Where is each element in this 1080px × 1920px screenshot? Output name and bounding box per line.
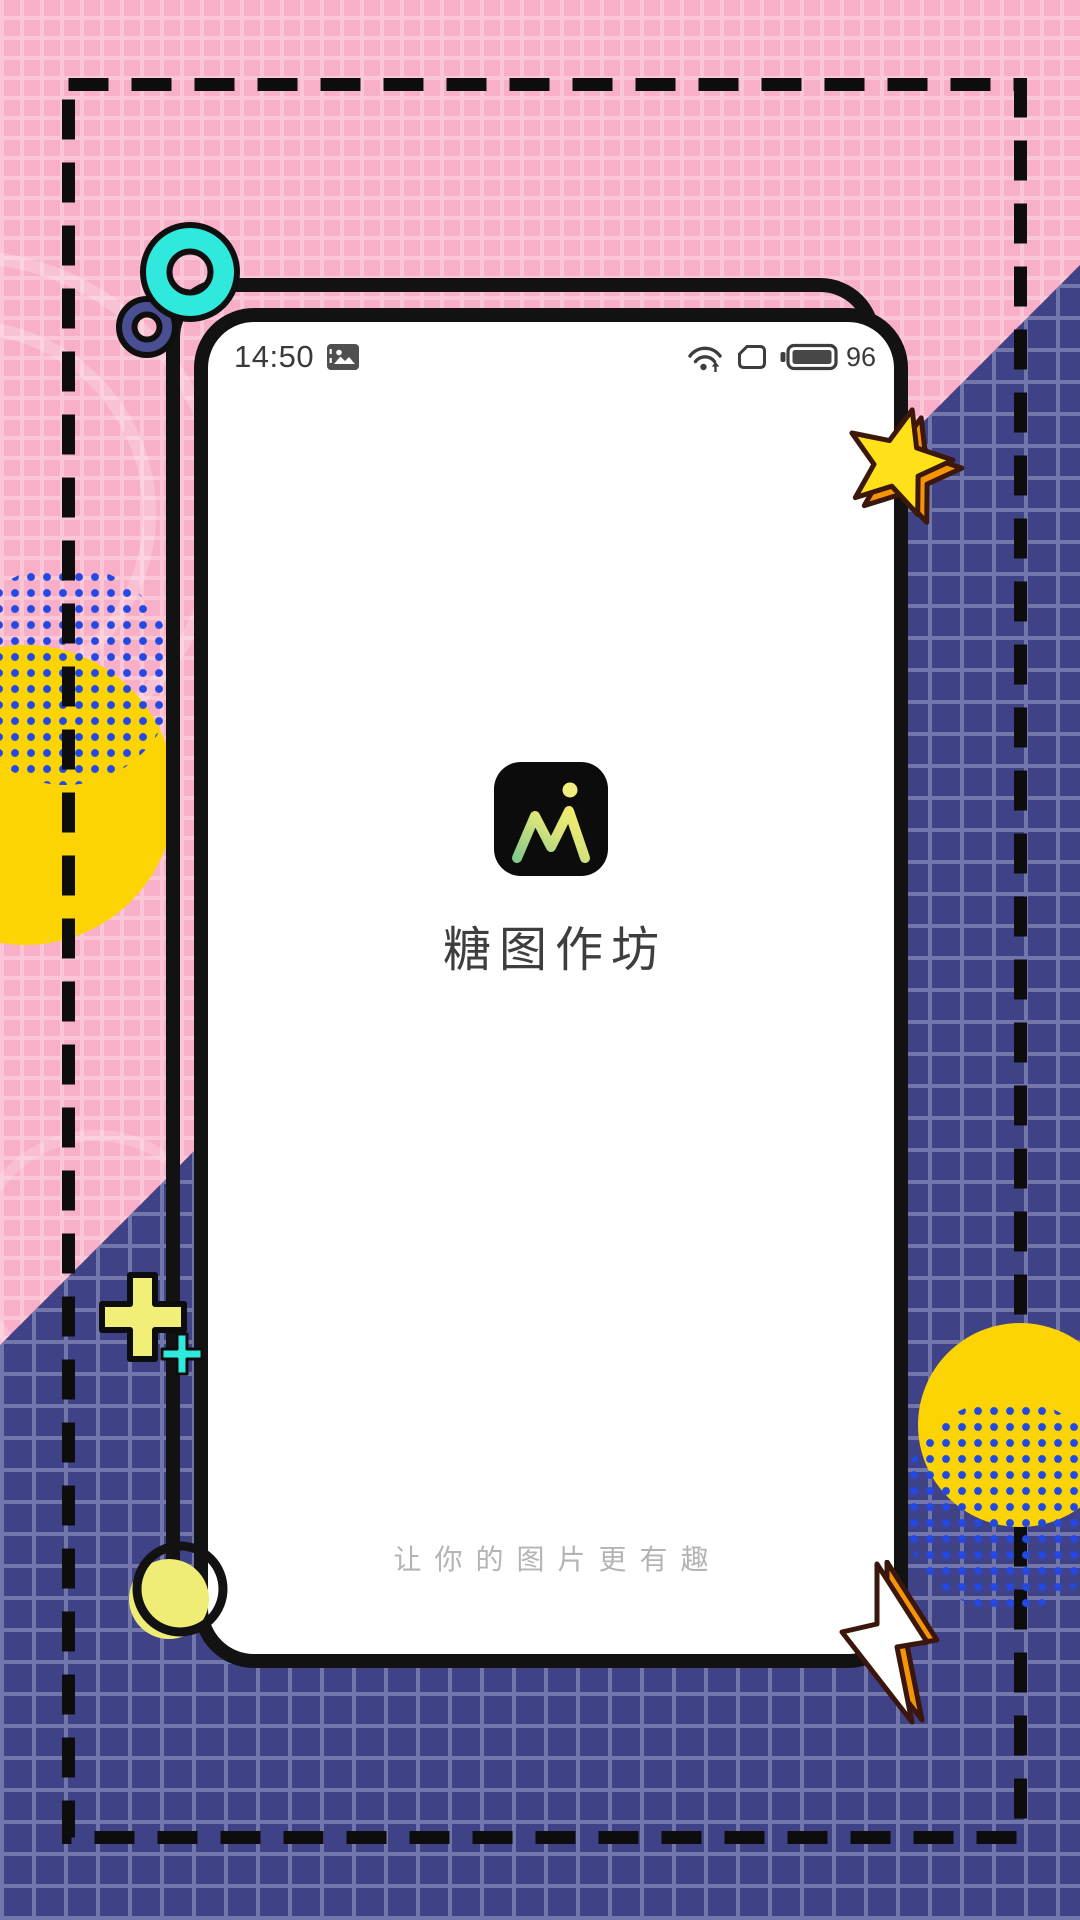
poster-canvas: 14:50 <box>0 0 1080 1920</box>
battery-icon <box>780 342 838 372</box>
app-logo-icon <box>494 762 608 876</box>
wifi-icon <box>686 341 724 373</box>
black-ring-icon <box>132 1541 228 1637</box>
picture-icon <box>326 343 360 371</box>
status-bar: 14:50 <box>234 338 876 376</box>
lightning-bolt-icon <box>822 1560 954 1732</box>
cyan-plus-icon <box>160 1332 204 1376</box>
cyan-ring-icon <box>140 222 240 322</box>
star-icon <box>836 398 968 530</box>
battery-percent-text: 96 <box>846 342 876 373</box>
splash-branding: 糖图作坊 <box>208 762 894 980</box>
status-bar-right: 96 <box>686 341 876 373</box>
m-logo-icon <box>494 762 608 876</box>
phone-mockup: 14:50 <box>194 308 908 1668</box>
sim-card-icon <box>736 343 768 371</box>
clock-text: 14:50 <box>234 339 314 375</box>
splash-tagline: 让你的图片更有趣 <box>208 1538 894 1578</box>
app-name: 糖图作坊 <box>435 910 667 980</box>
status-bar-left: 14:50 <box>234 339 360 375</box>
